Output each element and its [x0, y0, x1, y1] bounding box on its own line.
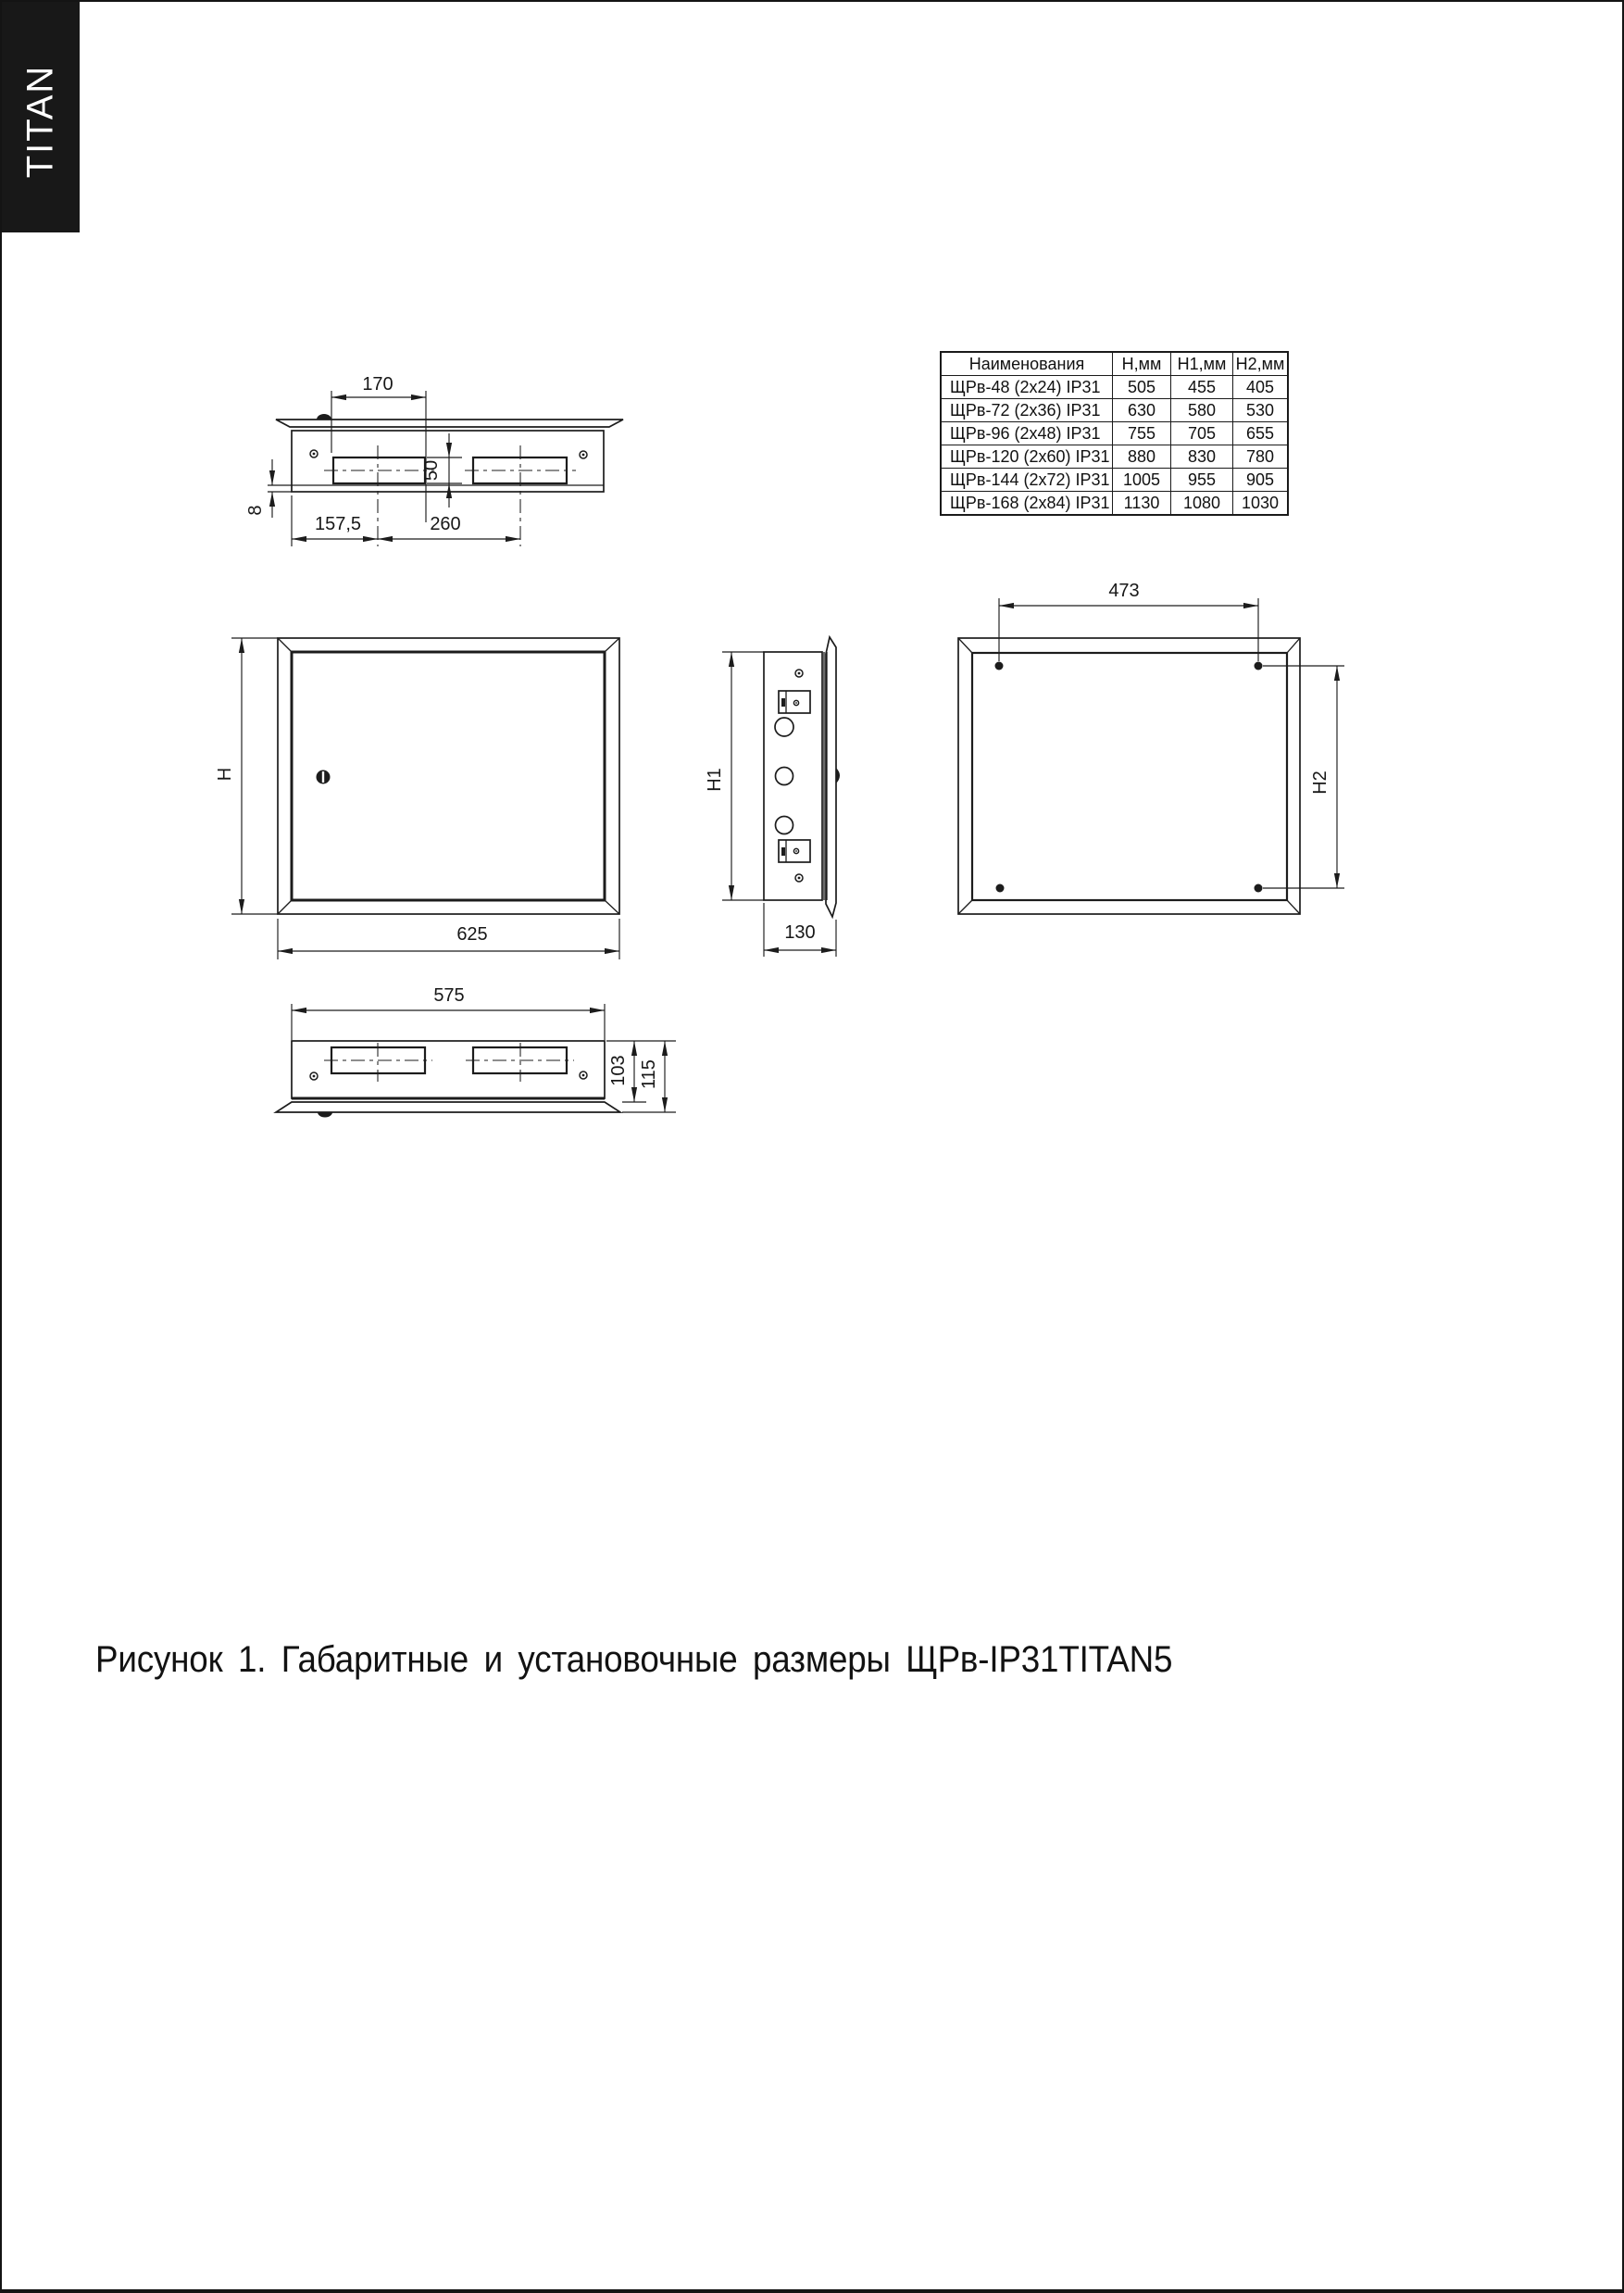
page: TITAN Наименования Н,мм Н1,мм Н2,мм ЩРв-… — [0, 0, 1624, 2293]
h1-cell: 455 — [1171, 376, 1233, 399]
back-view-outline — [958, 638, 1300, 914]
dim-width-625: 625 — [456, 924, 487, 945]
door-lock — [317, 771, 331, 784]
table-row: ЩРв-96 (2х48) IP31 755 705 655 — [941, 422, 1288, 445]
h2-cell: 655 — [1233, 422, 1289, 445]
dimensions-table: Наименования Н,мм Н1,мм Н2,мм ЩРв-48 (2х… — [940, 351, 1289, 516]
dim-hole-spacing-h2: H2 — [1310, 771, 1330, 795]
lock-knob-top — [317, 414, 331, 420]
model-cell: ЩРв-48 (2х24) IP31 — [941, 376, 1113, 399]
h-cell: 880 — [1113, 445, 1171, 469]
door-panel — [292, 652, 605, 900]
din-bracket — [779, 691, 810, 713]
brand-logo-text: TITAN — [20, 65, 62, 179]
h2-cell: 780 — [1233, 445, 1289, 469]
bottom-view-dimensions: 575 103 115 — [292, 985, 676, 1112]
model-cell: ЩРв-96 (2х48) IP31 — [941, 422, 1113, 445]
dim-hole-spacing-473: 473 — [1108, 581, 1139, 601]
col-header-h2: Н2,мм — [1233, 352, 1289, 376]
dim-center-spacing: 260 — [430, 514, 460, 534]
model-cell: ЩРв-144 (2х72) IP31 — [941, 469, 1113, 492]
dim-width-575: 575 — [433, 985, 464, 1006]
back-view-dimensions: 473 H2 — [999, 581, 1344, 888]
h2-cell: 905 — [1233, 469, 1289, 492]
back-view-drawing: 473 H2 — [932, 571, 1354, 928]
lock-latch — [836, 768, 840, 783]
dim-depth-103: 103 — [608, 1055, 629, 1085]
side-view-dimensions: H1 130 — [705, 652, 836, 957]
h2-cell: 530 — [1233, 399, 1289, 422]
bottom-view-outline — [276, 1041, 620, 1118]
col-header-name: Наименования — [941, 352, 1113, 376]
dim-cutout-height: 50 — [421, 460, 442, 481]
h1-cell: 705 — [1171, 422, 1233, 445]
model-cell: ЩРв-72 (2х36) IP31 — [941, 399, 1113, 422]
table-row: ЩРв-48 (2х24) IP31 505 455 405 — [941, 376, 1288, 399]
side-view-outline — [764, 637, 840, 917]
dim-edge-to-center: 157,5 — [315, 514, 361, 534]
model-cell: ЩРв-120 (2х60) IP31 — [941, 445, 1113, 469]
dim-depth-115: 115 — [639, 1059, 659, 1089]
brand-banner: TITAN — [2, 2, 80, 232]
col-header-h: Н,мм — [1113, 352, 1171, 376]
front-view-dimensions: H 625 — [215, 638, 619, 959]
front-view-drawing: H 625 — [215, 608, 650, 970]
model-cell: ЩРв-168 (2х84) IP31 — [941, 492, 1113, 516]
round-knockout — [776, 817, 793, 834]
bottom-view-drawing: 575 103 115 — [256, 979, 687, 1127]
h-cell: 505 — [1113, 376, 1171, 399]
table-row: ЩРв-120 (2х60) IP31 880 830 780 — [941, 445, 1288, 469]
h1-cell: 955 — [1171, 469, 1233, 492]
col-header-h1: Н1,мм — [1171, 352, 1233, 376]
h1-cell: 830 — [1171, 445, 1233, 469]
round-knockout — [775, 718, 793, 736]
h-cell: 1130 — [1113, 492, 1171, 516]
h-cell: 755 — [1113, 422, 1171, 445]
front-flange-edge — [826, 637, 836, 917]
h2-cell: 405 — [1233, 376, 1289, 399]
front-view-outline — [278, 638, 619, 914]
h-cell: 630 — [1113, 399, 1171, 422]
top-view-dimensions: 170 50 8 157,5 260 — [245, 374, 520, 546]
table-row: ЩРв-144 (2х72) IP31 1005 955 905 — [941, 469, 1288, 492]
h2-cell: 1030 — [1233, 492, 1289, 516]
dim-cutout-width: 170 — [362, 374, 393, 395]
h1-cell: 580 — [1171, 399, 1233, 422]
mounting-hole — [995, 662, 1004, 670]
table-header-row: Наименования Н,мм Н1,мм Н2,мм — [941, 352, 1288, 376]
mounting-hole — [996, 884, 1005, 893]
side-view-drawing: H1 130 — [701, 608, 863, 970]
top-view-drawing: 170 50 8 157,5 260 — [252, 368, 696, 576]
h1-cell: 1080 — [1171, 492, 1233, 516]
dim-rear-offset: 8 — [245, 505, 266, 515]
figure-caption: Рисунок 1. Габаритные и установочные раз… — [95, 1639, 1172, 1681]
lock-knob-bottom — [318, 1112, 332, 1118]
dim-depth-130: 130 — [784, 922, 815, 943]
dim-height-h: H — [215, 768, 235, 781]
round-knockout — [776, 768, 793, 785]
h-cell: 1005 — [1113, 469, 1171, 492]
din-bracket — [779, 840, 810, 862]
mounting-hole — [1255, 884, 1263, 893]
dim-height-h1: H1 — [705, 768, 725, 792]
table-row: ЩРв-168 (2х84) IP31 1130 1080 1030 — [941, 492, 1288, 516]
mounting-hole — [1255, 662, 1263, 670]
table-row: ЩРв-72 (2х36) IP31 630 580 530 — [941, 399, 1288, 422]
